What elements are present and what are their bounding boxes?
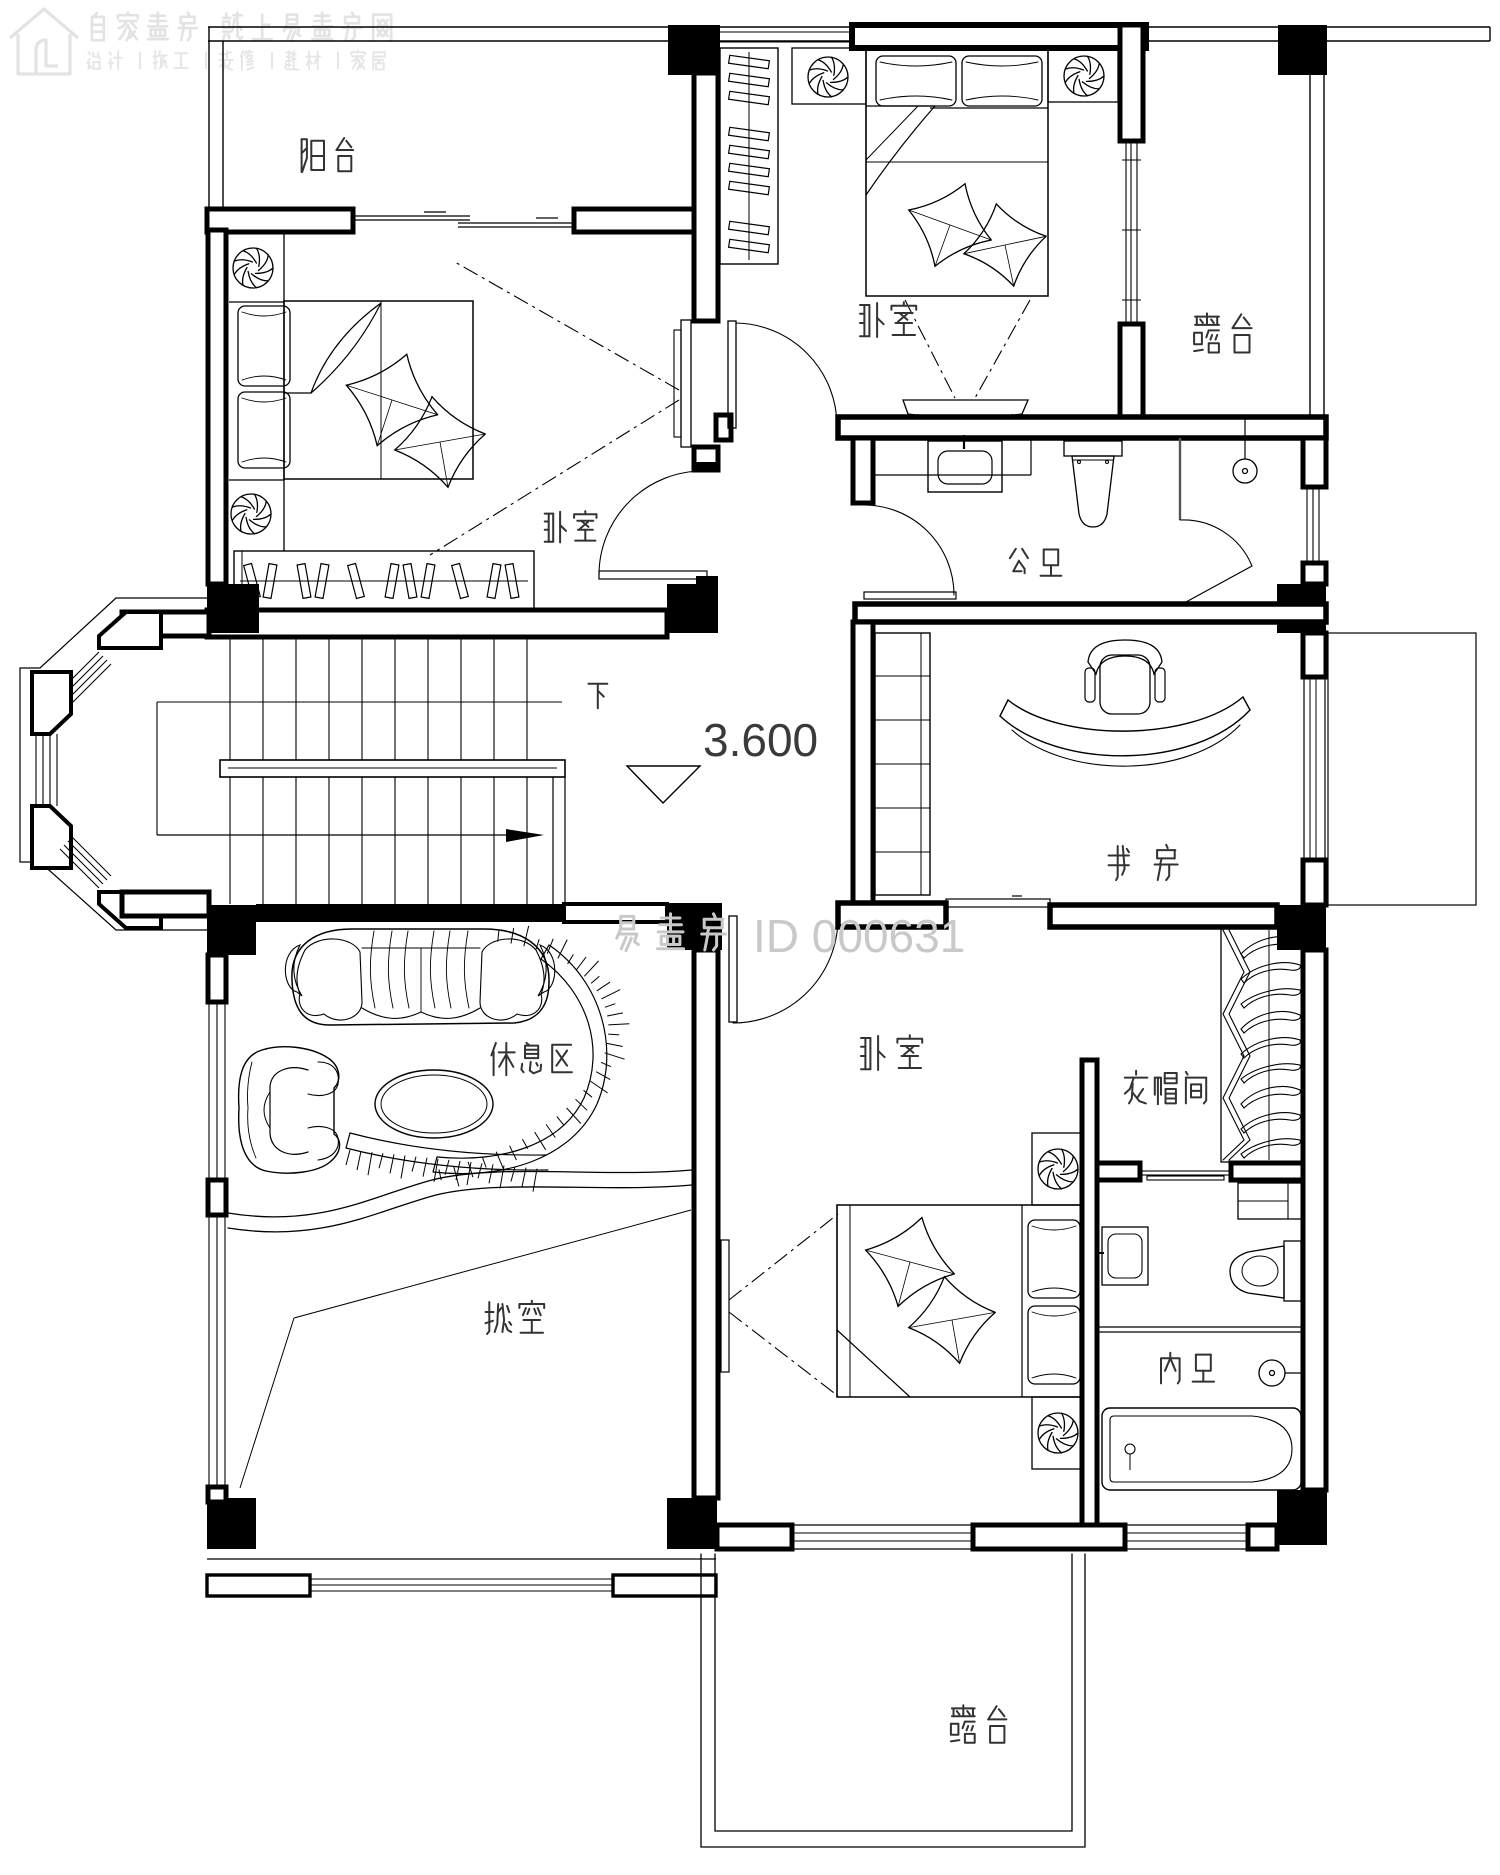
svg-text:3.600: 3.600 <box>703 714 818 766</box>
svg-text:ID 000631: ID 000631 <box>753 910 965 962</box>
